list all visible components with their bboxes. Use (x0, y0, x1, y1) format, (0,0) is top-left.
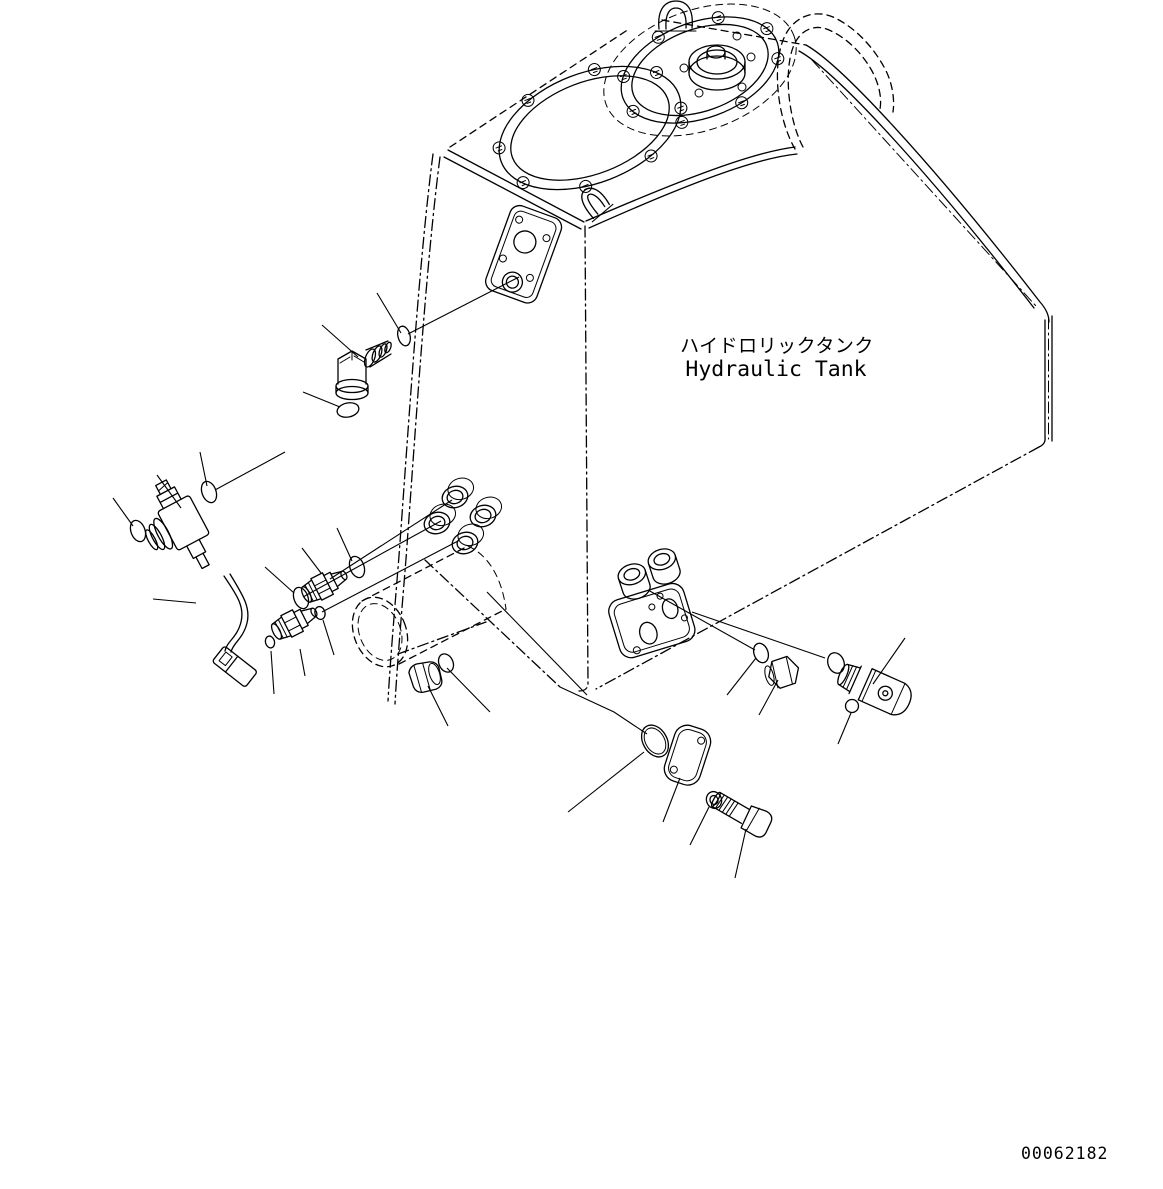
handrail (777, 14, 893, 149)
lifting-eye-top (655, 1, 696, 31)
o-ring (846, 700, 859, 713)
tank-label-japanese: ハイドロリックタンク (680, 335, 874, 357)
suction-strainer (342, 546, 506, 675)
cover-plate (661, 722, 714, 789)
front-mounting-pad (483, 203, 565, 306)
elbow-fitting (336, 341, 392, 400)
pressure-sensor (127, 474, 222, 585)
tank-label-english: Hydraulic Tank (685, 357, 866, 382)
drawing-number: 00062182 (1021, 1144, 1108, 1163)
o-ring (336, 401, 360, 419)
port-bosses (420, 475, 507, 557)
left-handrail-tube (388, 154, 440, 704)
hydraulic-tank-exploded-diagram: ハイドロリックタンク Hydraulic Tank 00062182 (0, 0, 1163, 1189)
bolt (708, 785, 775, 839)
manifold-block (606, 546, 698, 661)
breather-cap (680, 32, 755, 97)
sensor-cable (224, 574, 248, 652)
filler-cover-right (586, 0, 815, 161)
cable-connector (212, 646, 257, 688)
o-ring (825, 650, 847, 675)
shutoff-valve (833, 658, 916, 720)
o-ring (313, 605, 326, 620)
o-ring (264, 635, 276, 649)
nipple-fitting-lower (268, 601, 322, 644)
o-rings (128, 325, 859, 713)
o-ring (199, 479, 220, 504)
filler-cover-left (477, 38, 702, 218)
parts-diagram-page: ハイドロリックタンク Hydraulic Tank 00062182 (0, 0, 1163, 1189)
